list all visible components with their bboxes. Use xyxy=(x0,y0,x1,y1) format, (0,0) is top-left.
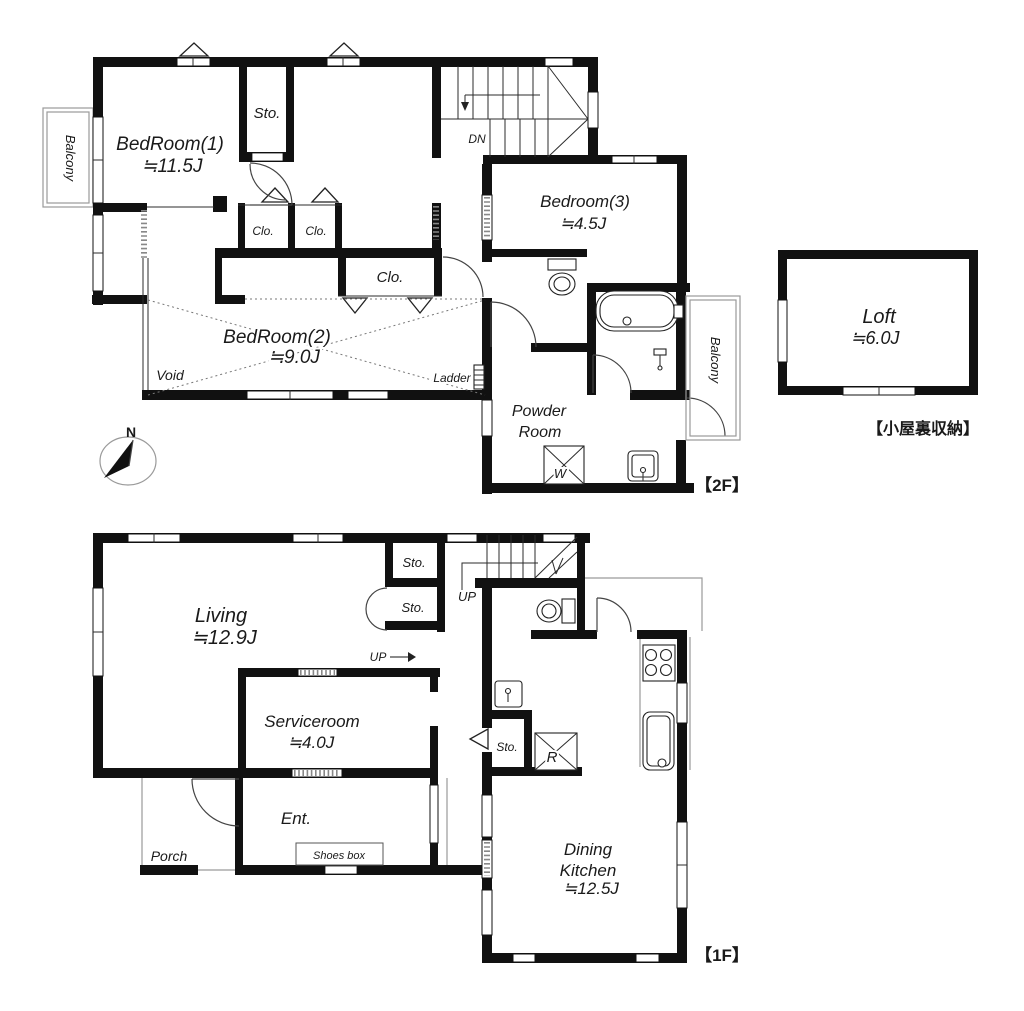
balcony-left-label: Balcony xyxy=(63,135,78,183)
storage-1f-upper-label: Sto. xyxy=(402,555,425,570)
living-name: Living xyxy=(195,605,247,627)
washer-label: W xyxy=(554,466,568,481)
bedroom2-size: ≒9.0J xyxy=(268,347,320,368)
void-label: Void xyxy=(156,367,185,383)
floor2-tag: 【2F】 xyxy=(695,475,749,495)
floorplan-page: BedRoom(1) ≒11.5J Sto. Clo. Clo. Clo. DN… xyxy=(0,0,1024,1011)
dining-kitchen-line1: Dining xyxy=(564,840,613,859)
washbasin-1f-icon xyxy=(495,681,522,707)
living-size: ≒12.9J xyxy=(191,627,258,649)
up-label-stairs: UP xyxy=(458,589,476,604)
kitchen-counter-icon xyxy=(640,639,675,770)
entrance-label: Ent. xyxy=(281,809,311,828)
bedroom1-size: ≒11.5J xyxy=(141,156,203,177)
toilet-2f-icon xyxy=(548,259,576,295)
staircase-2f xyxy=(441,66,588,157)
ladder-label: Ladder xyxy=(433,371,471,385)
serviceroom-size: ≒4.0J xyxy=(288,733,335,752)
dining-kitchen-line2: Kitchen xyxy=(560,861,617,880)
storage-1f-mid-label: Sto. xyxy=(401,600,424,615)
closet-label-1: Clo. xyxy=(252,224,273,238)
shoes-box-label: Shoes box xyxy=(313,850,365,862)
bedroom3-size: ≒4.5J xyxy=(560,214,607,233)
dining-kitchen-size: ≒12.5J xyxy=(563,879,619,898)
north-compass: N xyxy=(100,424,156,485)
attic-storage-tag: 【小屋裏収納】 xyxy=(867,419,979,438)
refrigerator-label: R xyxy=(547,749,558,766)
floorplan-canvas: BedRoom(1) ≒11.5J Sto. Clo. Clo. Clo. DN… xyxy=(0,0,1024,1011)
floor2-plan: BedRoom(1) ≒11.5J Sto. Clo. Clo. Clo. DN… xyxy=(43,43,979,495)
loft-name: Loft xyxy=(862,306,897,328)
loft-size: ≒6.0J xyxy=(850,328,900,348)
stairs-down-label: DN xyxy=(468,132,486,146)
washbasin-2f-icon xyxy=(628,451,658,481)
powder-room-line2: Room xyxy=(519,424,562,441)
up-arrow-mid: UP xyxy=(370,650,416,664)
up-label-mid: UP xyxy=(370,650,387,664)
bedroom3-name: Bedroom(3) xyxy=(540,192,630,211)
toilet-1f-icon xyxy=(537,599,575,623)
bedroom2-name: BedRoom(2) xyxy=(223,327,331,348)
serviceroom-name: Serviceroom xyxy=(264,712,359,731)
porch-label: Porch xyxy=(151,848,188,864)
floor1-tag: 【1F】 xyxy=(695,945,749,965)
ladder-icon xyxy=(474,365,484,389)
storage-2f-label: Sto. xyxy=(254,105,281,122)
closet-label-3: Clo. xyxy=(377,269,404,286)
floor1-plan: Living ≒12.9J Sto. Sto. UP UP Serviceroo… xyxy=(93,533,749,965)
storage-1f-lower-label: Sto. xyxy=(496,740,517,754)
north-label: N xyxy=(126,424,136,440)
closet-label-2: Clo. xyxy=(305,224,326,238)
balcony-right-label: Balcony xyxy=(708,337,723,385)
bedroom1-name: BedRoom(1) xyxy=(116,134,224,155)
powder-room-line1: Powder xyxy=(512,403,567,420)
